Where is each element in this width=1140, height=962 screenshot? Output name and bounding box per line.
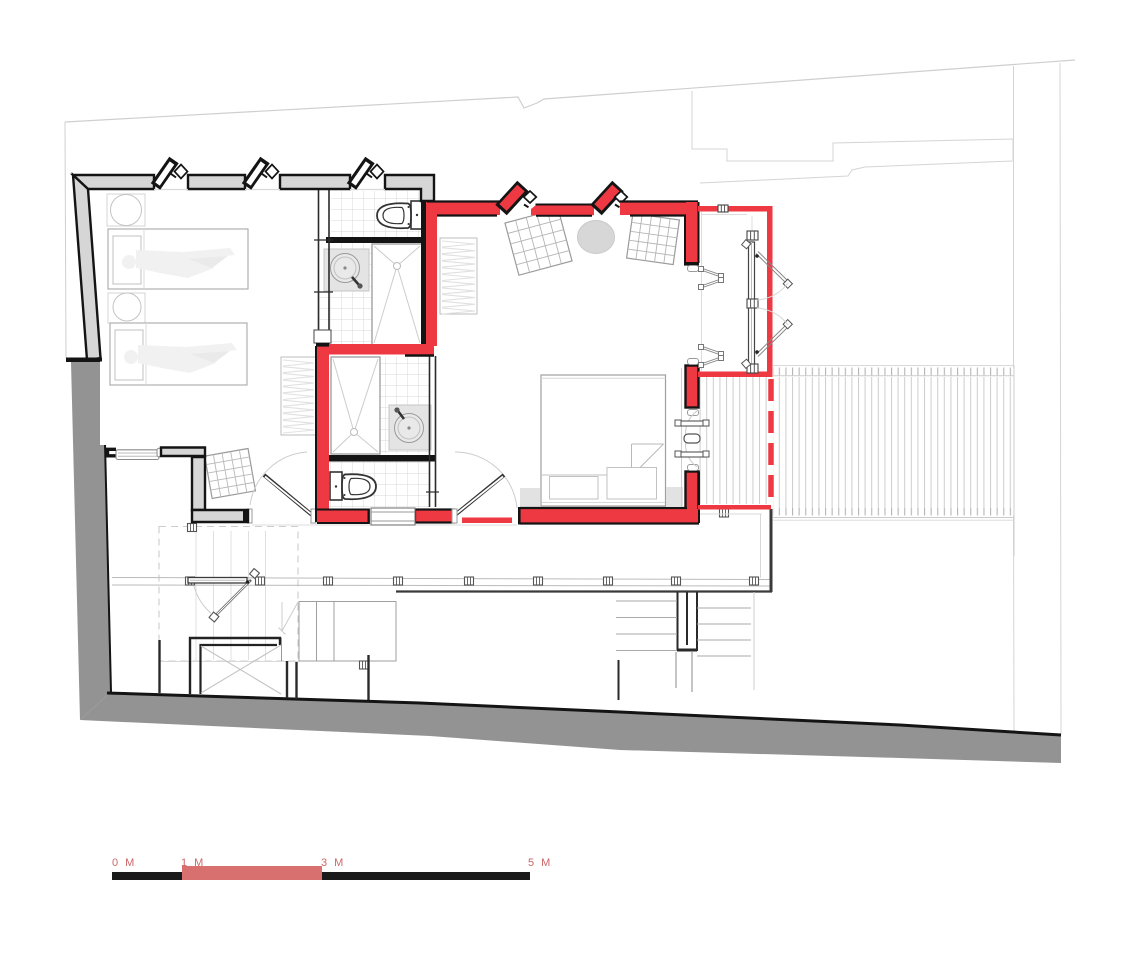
- svg-text:0 M: 0 M: [112, 857, 136, 869]
- svg-text:3 M: 3 M: [321, 857, 345, 869]
- svg-text:5 M: 5 M: [528, 857, 552, 869]
- svg-text:1 M: 1 M: [181, 857, 205, 869]
